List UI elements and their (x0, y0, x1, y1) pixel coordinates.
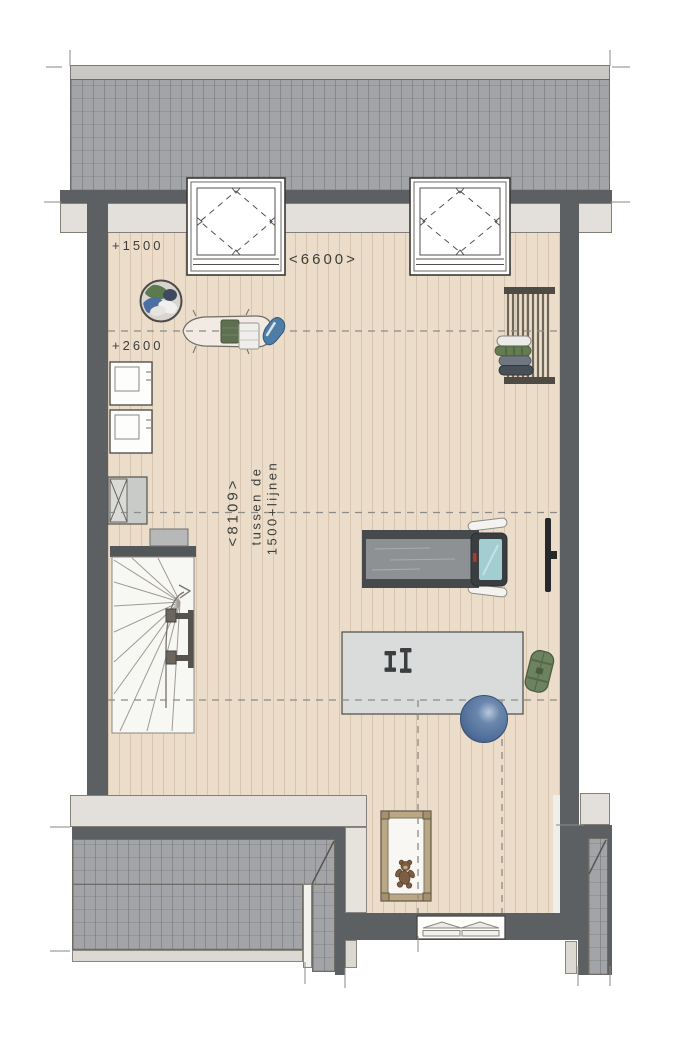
level-label-front: +1500 (112, 238, 164, 253)
width-dimension-label: <6600> (289, 251, 358, 268)
skylight-left (187, 178, 285, 275)
facade-window (417, 916, 505, 939)
exercise-ball (461, 696, 508, 743)
ventilation-unit (108, 477, 147, 524)
staircase (110, 546, 196, 733)
sports-bag (523, 649, 555, 694)
hip-line-left (312, 841, 334, 884)
wall-tv (545, 518, 557, 592)
washing-machine-top (110, 362, 152, 405)
hip-line-right (589, 840, 606, 874)
skylight-right (410, 178, 510, 275)
storage-box (150, 529, 188, 546)
treadmill (362, 518, 507, 598)
treadmill-stop-button (473, 553, 477, 562)
level-label-back: +2600 (112, 338, 164, 353)
floor-plan: +1500 <6600> +2600 <8109> tussen de 1500… (0, 0, 682, 1050)
crib (381, 811, 431, 901)
treadmill-belt (366, 539, 477, 579)
plan-detail-layer (0, 0, 682, 1050)
washing-machine-bottom (110, 410, 152, 453)
hanging-clothes (495, 336, 533, 375)
laundry-basket (139, 281, 181, 322)
